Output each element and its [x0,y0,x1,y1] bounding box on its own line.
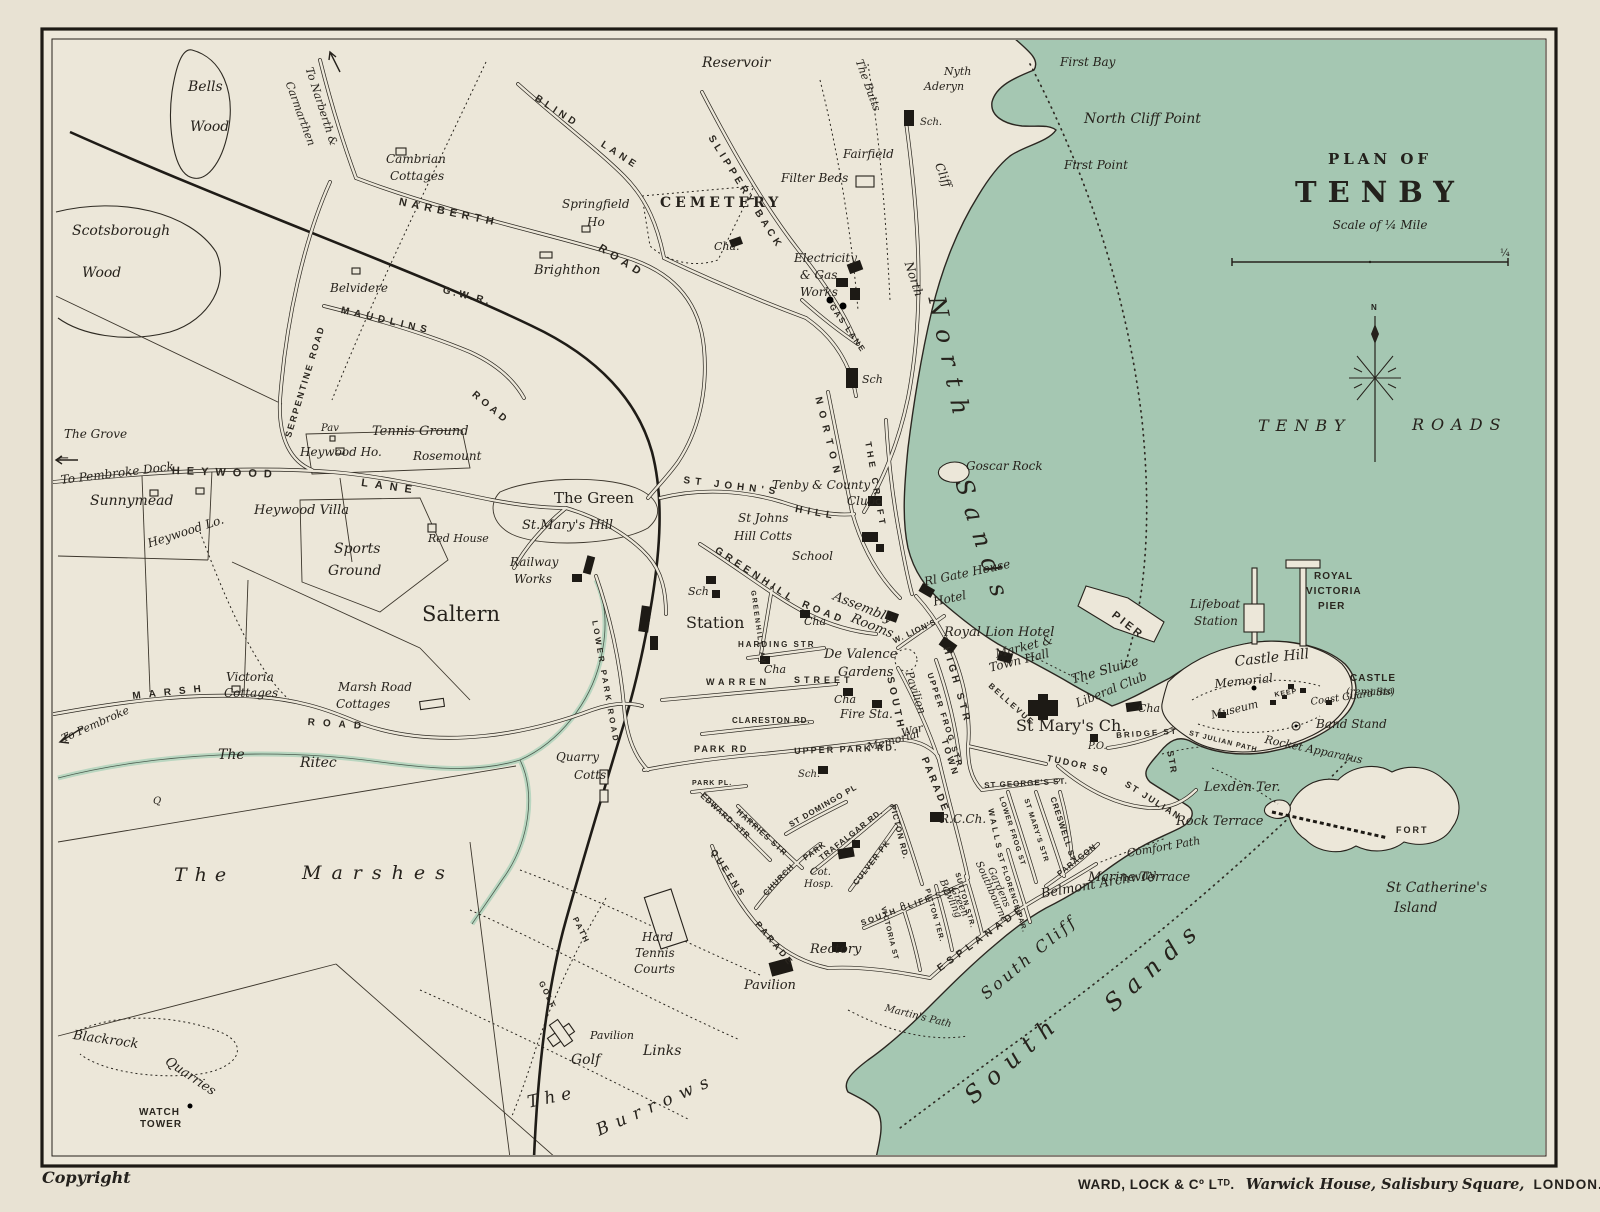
publisher-city: LONDON. [1534,1177,1600,1192]
goscar-rock [938,462,969,482]
copyright-note: Copyright [42,1168,131,1187]
publisher-name: WARD, LOCK & Cº Lᵀᴰ. [1078,1177,1235,1192]
title-cartouche: PLAN OF TENBY Scale of ¼ Mile [1250,150,1510,232]
compass-north-label: N [1371,303,1377,312]
map-scale-caption: Scale of ¼ Mile [1250,218,1510,232]
map-subtitle: PLAN OF [1250,150,1510,168]
publisher-imprint: WARD, LOCK & Cº Lᵀᴰ. Warwick House, Sali… [1078,1174,1600,1193]
map-title: TENBY [1250,175,1510,209]
scale-quarter-label: ¼ [1500,248,1510,259]
publisher-address: Warwick House, Salisbury Square, [1246,1176,1525,1193]
tenby-map-sheet: BellsWoodScotsboroughWoodTo Narberth &Ca… [0,0,1600,1212]
